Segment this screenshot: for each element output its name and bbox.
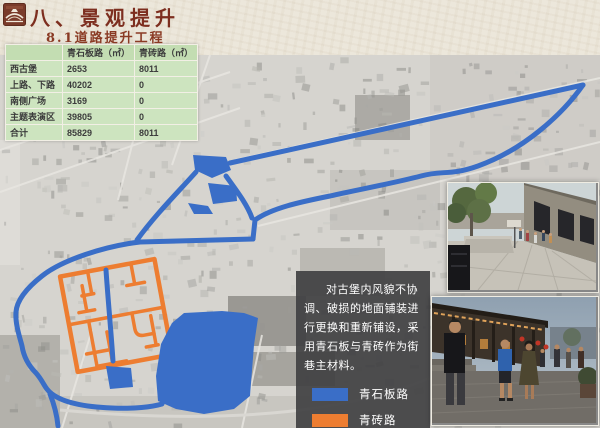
legend-label: 青石板路 [359, 386, 409, 402]
stone-value: 39805 [63, 109, 135, 125]
table-row: 西古堡 2653 8011 [6, 61, 198, 77]
row-label: 主题表演区 [6, 109, 63, 125]
slide: { "header": { "title": "八、景观提升", "subtit… [0, 0, 600, 428]
row-label: 西古堡 [6, 61, 63, 77]
quantity-table: 青石板路（㎡） 青砖路（㎡） 西古堡 2653 8011 上路、下路 40202… [5, 44, 198, 141]
legend-swatch-bluestone [312, 388, 348, 401]
stone-value: 40202 [63, 77, 135, 93]
table-row: 主题表演区 39805 0 [6, 109, 198, 125]
legend-item-brick: 青砖路 [304, 412, 422, 428]
brick-value: 8011 [135, 61, 198, 77]
stone-value: 2653 [63, 61, 135, 77]
table-row: 上路、下路 40202 0 [6, 77, 198, 93]
table-col-header-brick: 青砖路（㎡） [135, 45, 198, 61]
legend-label: 青砖路 [359, 412, 397, 428]
brick-value: 0 [135, 109, 198, 125]
table-corner-cell [6, 45, 63, 61]
legend-item-bluestone: 青石板路 [304, 386, 422, 402]
brick-value: 0 [135, 93, 198, 109]
photo-street-evening [431, 296, 599, 426]
legend-swatch-brick [312, 414, 348, 427]
row-label: 上路、下路 [6, 77, 63, 93]
photo-street-day [447, 182, 599, 293]
brick-value: 0 [135, 77, 198, 93]
info-box: 对古堡内风貌不协调、破损的地面铺装进行更换和重新铺设，采用青石板与青砖作为街巷主… [296, 271, 430, 428]
table-row: 合计 85829 8011 [6, 125, 198, 141]
bridge-seal-icon [3, 3, 26, 26]
brick-value: 8011 [135, 125, 198, 141]
row-label: 南侧广场 [6, 93, 63, 109]
pond-area [156, 311, 258, 414]
stone-value: 3169 [63, 93, 135, 109]
stone-value: 85829 [63, 125, 135, 141]
page-subtitle: 8.1道路提升工程 [46, 27, 165, 46]
info-text: 对古堡内风貌不协调、破损的地面铺装进行更换和重新铺设，采用青石板与青砖作为街巷主… [304, 281, 422, 376]
theater-blob [106, 366, 133, 389]
table-col-header-stone: 青石板路（㎡） [63, 45, 135, 61]
table-row: 南侧广场 3169 0 [6, 93, 198, 109]
row-label: 合计 [6, 125, 63, 141]
